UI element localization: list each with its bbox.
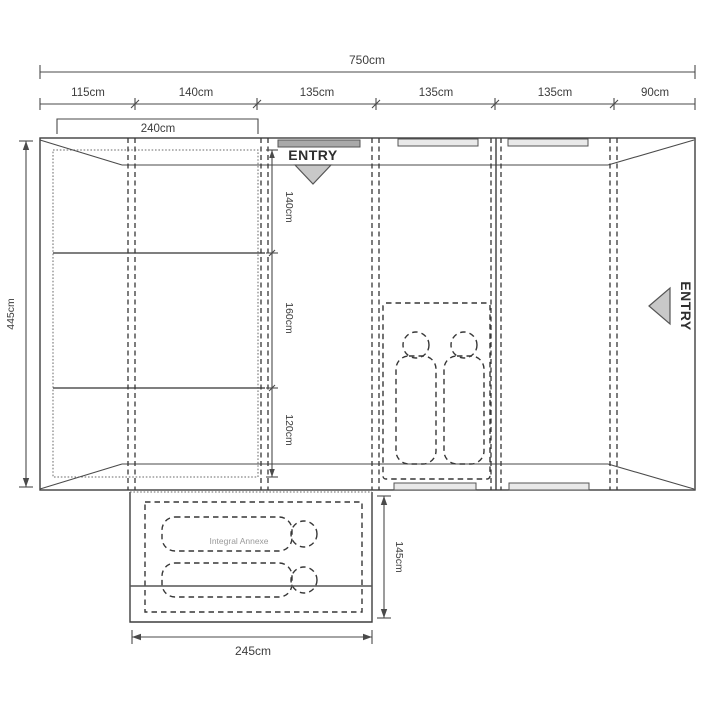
entry-right-label: ENTRY: [678, 281, 694, 331]
section-label-2: 140cm: [179, 87, 214, 99]
bedroom-sleeping-bags: [75, 164, 234, 470]
sleeping-bag-icon: [75, 342, 234, 378]
sleeping-bag-icon: [76, 297, 235, 333]
door-marker: [508, 139, 588, 146]
entry-arrow-left-icon: [649, 288, 670, 324]
sleeping-bag-icon: [76, 391, 235, 426]
bedroom-width-dimension: 240cm: [57, 119, 258, 135]
annexe-label: Integral Annexe: [209, 536, 268, 546]
inner-tent-outline: [383, 303, 490, 479]
door-marker: [398, 139, 478, 146]
door-marker: [509, 483, 589, 490]
annexe-width-dimension: 245cm: [132, 630, 372, 658]
section-label-3: 135cm: [300, 87, 335, 99]
annexe-depth-dimension: 145cm: [377, 496, 405, 618]
sleeping-bag-icon: [76, 252, 235, 287]
door-marker: [278, 140, 360, 147]
sleeping-bag-outline-icon: [162, 563, 317, 597]
section-label-4: 135cm: [419, 87, 454, 99]
overall-width-dimension: 750cm: [40, 53, 695, 79]
bedroom-depth-dimension: 140cm 160cm 120cm: [266, 150, 295, 477]
sleeping-bag-icon: [76, 434, 235, 470]
annexe-outline: [130, 492, 372, 622]
sleeping-bag-outline-icon: [444, 332, 484, 464]
bedroom-section-label-2: 160cm: [283, 302, 295, 334]
bedroom-width-label: 240cm: [141, 123, 176, 135]
overall-depth-label: 445cm: [5, 298, 17, 330]
annexe-width-label: 245cm: [235, 644, 271, 658]
sleeping-bag-outline-icon: [396, 332, 436, 464]
annexe: Integral Annexe 245cm 145cm: [130, 492, 405, 658]
annexe-depth-label: 145cm: [393, 541, 405, 573]
door-marker: [394, 483, 476, 490]
annexe-inner-outline: [145, 502, 362, 612]
overall-depth-dimension: 445cm: [5, 141, 33, 487]
sleeping-bag-icon: [75, 164, 234, 200]
bedroom-section-label-1: 140cm: [283, 191, 295, 223]
section-width-dimension: 115cm 140cm 135cm 135cm 135cm 90cm: [40, 87, 695, 110]
section-label-5: 135cm: [538, 87, 573, 99]
entry-right: ENTRY: [649, 281, 694, 331]
section-label-6: 90cm: [641, 87, 669, 99]
entry-top-label: ENTRY: [288, 147, 338, 163]
bedroom-section-label-3: 120cm: [283, 414, 295, 446]
tent-floorplan-diagram: 750cm 115cm 140cm 135cm 135cm 135cm 90cm…: [0, 0, 720, 720]
section-label-1: 115cm: [71, 87, 105, 99]
tent-body: ENTRY ENTRY 140cm 160cm 120cm: [40, 138, 695, 490]
floorplan-svg: 750cm 115cm 140cm 135cm 135cm 135cm 90cm…: [0, 0, 720, 720]
overall-width-label: 750cm: [349, 53, 385, 67]
sleeping-bag-icon: [76, 206, 235, 242]
entry-top: ENTRY: [288, 147, 338, 184]
entry-arrow-down-icon: [295, 165, 331, 184]
door-markers: [278, 139, 589, 490]
